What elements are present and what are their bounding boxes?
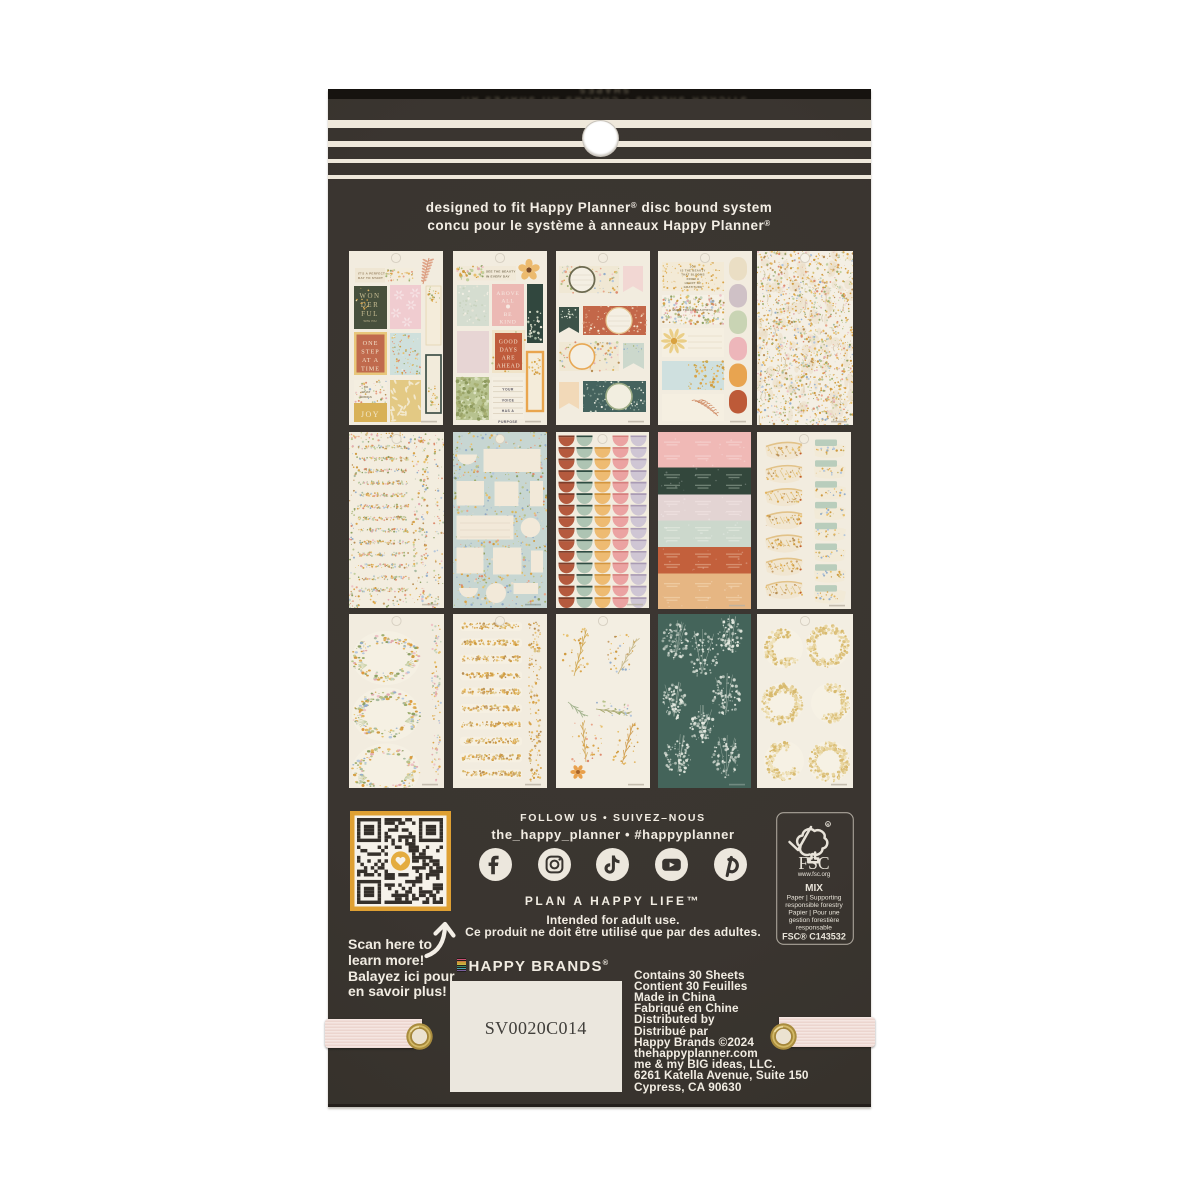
svg-text:STEP: STEP	[361, 349, 379, 356]
svg-text:WITH YOU: WITH YOU	[363, 319, 376, 323]
svg-text:IN EVERY DAY: IN EVERY DAY	[486, 275, 511, 279]
svg-text:IT'S A PERFECT: IT'S A PERFECT	[358, 272, 385, 276]
svg-text:VOICE: VOICE	[501, 398, 514, 402]
svg-text:GRATITUDE: GRATITUDE	[683, 285, 702, 289]
svg-text:ALL: ALL	[501, 299, 514, 305]
svg-text:AT A: AT A	[361, 357, 378, 364]
svg-text:YOUR: YOUR	[502, 388, 514, 392]
svg-text:TIME: TIME	[360, 366, 379, 373]
svg-text:ONE: ONE	[362, 340, 378, 347]
svg-text:DAYS: DAYS	[499, 348, 517, 354]
svg-text:AHEAD: AHEAD	[496, 364, 520, 370]
svg-text:GOOD: GOOD	[498, 340, 518, 346]
svg-text:HAS A: HAS A	[501, 409, 514, 413]
svg-text:WON: WON	[359, 292, 380, 300]
svg-text:JOY: JOY	[360, 410, 379, 419]
svg-text:SEE THE BEAUTY: SEE THE BEAUTY	[486, 270, 516, 274]
svg-text:ARE: ARE	[501, 356, 515, 362]
svg-text:DO: DO	[363, 385, 368, 389]
svg-text:PURPOSE: PURPOSE	[498, 420, 518, 424]
svg-text:BRINGS: BRINGS	[360, 395, 372, 399]
svg-text:BE: BE	[503, 312, 512, 318]
svg-text:KIND: KIND	[499, 320, 516, 326]
svg-text:WHAT: WHAT	[361, 390, 370, 394]
svg-text:ABOVE: ABOVE	[496, 291, 519, 297]
svg-text:DAY TO START: DAY TO START	[358, 276, 383, 280]
svg-text:FUL: FUL	[361, 310, 379, 318]
svg-text:MAKE TODAY BEAUTIFUL: MAKE TODAY BEAUTIFUL	[672, 308, 713, 312]
